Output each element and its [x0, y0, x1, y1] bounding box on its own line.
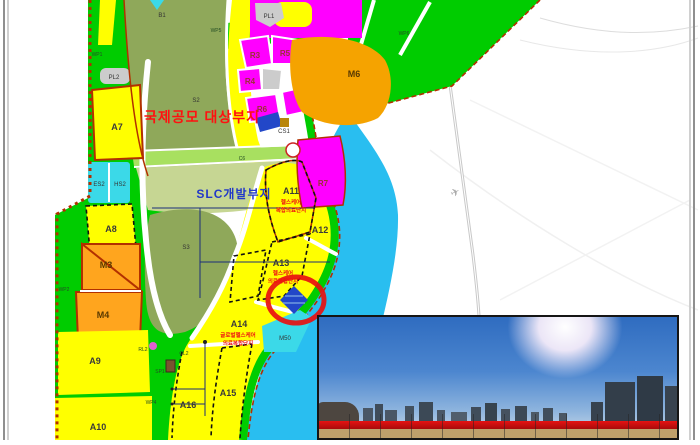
parcel-a11-label: A11	[283, 186, 299, 196]
zone-es2-label: ES2	[93, 182, 105, 188]
zone-cs1-label: CS1	[278, 129, 290, 135]
roundabout-circle	[286, 143, 300, 157]
page-edge-right-inner	[689, 0, 691, 440]
parcel-a13-label: A13	[273, 258, 290, 268]
a14-note-line2: 의료복합단지	[223, 339, 253, 347]
a14-note-line1: 글로벌헬스케어	[220, 331, 255, 339]
city-skyline	[319, 362, 677, 422]
road-rl2-label: RL2	[138, 347, 147, 353]
parcel-a8-label: A8	[105, 224, 117, 234]
road-wp6-label: WP6	[399, 31, 410, 37]
parcel-r5-label: R5	[280, 49, 291, 58]
road-wp2-label: WP2	[59, 287, 70, 293]
parcel-m6-label: M6	[348, 69, 361, 79]
parcel-r7	[297, 136, 345, 208]
parcel-a10-label: A10	[90, 422, 107, 432]
a11-note-line2: 복합의료단지	[276, 206, 306, 214]
road-wp1-label: WP1	[92, 52, 103, 58]
rl2-dot	[149, 342, 157, 350]
road-sp1-label: SP1	[155, 369, 165, 375]
parcel-r3-label: R3	[250, 51, 261, 60]
parcel-a12-label: A12	[312, 225, 329, 235]
page-edge-left-inner	[7, 0, 9, 440]
zone-pl2-label: PL2	[109, 75, 120, 81]
page-edge-right-outer	[693, 0, 695, 440]
parcel-gray-h	[262, 68, 282, 90]
zone-s3-label: S3	[182, 245, 190, 251]
zone-b1-label: B1	[158, 13, 166, 19]
a11-note-line1: 헬스케어	[281, 198, 301, 206]
site-photo-inset	[317, 315, 679, 440]
page-edge-left-outer	[3, 0, 5, 440]
parcel-r6-label: R6	[257, 105, 268, 114]
zone-hs2-label: HS2	[114, 182, 126, 188]
sp1-icon	[166, 360, 175, 372]
zone-pl1-label: PL1	[264, 14, 275, 20]
road-cl2-label: CL2	[179, 351, 188, 357]
road-c6-label: C6	[239, 156, 246, 162]
parcel-a7-label: A7	[111, 122, 123, 132]
parcel-gold-small	[280, 118, 289, 127]
interchange-icon: ✈	[449, 186, 462, 201]
parcel-r7-label: R7	[318, 179, 329, 188]
parcel-m3-label: M3	[100, 260, 113, 270]
parcel-a9-label: A9	[89, 356, 101, 366]
fence-posts	[319, 414, 677, 438]
competition-site-title: 국제공모 대상부지	[144, 109, 260, 125]
a13-note-line2: 의료복합단지	[268, 277, 298, 285]
parcel-a14-label: A14	[231, 319, 248, 329]
parcel-a16-label: A16	[180, 400, 197, 410]
parcel-a9	[58, 330, 150, 395]
parcel-a10	[55, 396, 152, 440]
zone-s2-label: S2	[192, 98, 200, 104]
parcel-a15-label: A15	[220, 388, 237, 398]
road-wp5-label: WP5	[211, 28, 222, 34]
parcel-m4-label: M4	[97, 310, 110, 320]
slc-site-title: SLC개발부지	[196, 186, 271, 201]
a13-note-line1: 헬스케어	[273, 269, 293, 277]
parcel-r4-label: R4	[245, 77, 256, 86]
road-wp4-label: WP4	[146, 400, 157, 406]
zone-m50-label: M50	[279, 336, 291, 342]
